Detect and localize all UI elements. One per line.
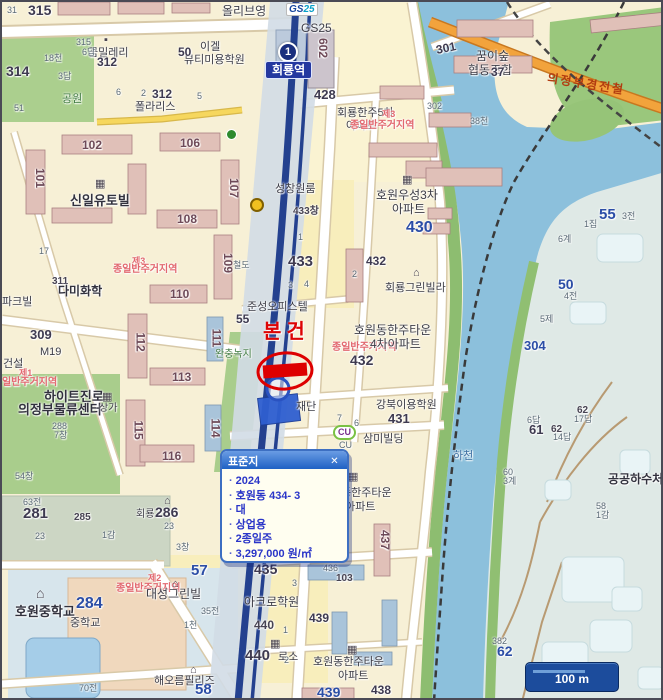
- map-label: 35전: [201, 607, 219, 616]
- map-label: 57: [191, 563, 208, 578]
- map-label: 62: [497, 644, 513, 658]
- map-label: 428: [314, 88, 336, 101]
- building-icon: ▦: [270, 639, 280, 650]
- map-label: 파크빌: [2, 297, 32, 308]
- map-label: 110: [170, 288, 189, 300]
- map-label: 438: [371, 684, 391, 696]
- map-label: 호원중학교: [15, 605, 75, 618]
- map-label: 7: [337, 414, 342, 423]
- map-label: 312: [152, 88, 172, 100]
- map-label: 이겔: [200, 42, 220, 53]
- house-icon: ⌂: [164, 496, 171, 507]
- map-label: 3계: [503, 477, 516, 486]
- map-label: 다미화학: [58, 285, 102, 297]
- map-label: 439: [309, 612, 329, 624]
- apartment-icon: ▦: [95, 179, 105, 190]
- map-label: 아파트: [392, 203, 425, 215]
- cu-store-logo: CU: [333, 425, 356, 440]
- shop-icon: ▪: [104, 35, 108, 46]
- map-label: 436: [323, 564, 338, 573]
- map-label: 114: [210, 418, 222, 437]
- school-icon: ⌂: [36, 586, 44, 600]
- map-label: 108: [177, 213, 197, 225]
- apartment-icon: ▦: [348, 472, 358, 483]
- map-label: 6계: [558, 235, 571, 244]
- map-label: 성창원룸: [275, 184, 315, 195]
- map-label: 1감: [102, 531, 115, 540]
- bullet: ·: [229, 533, 233, 545]
- bullet: ·: [229, 475, 233, 487]
- map-label: 2: [141, 89, 146, 98]
- apartment-icon: ▦: [347, 645, 357, 656]
- gs25-logo-text: GS: [289, 4, 303, 15]
- map-label: 17: [39, 247, 49, 256]
- map-label: 공공하수처리: [608, 473, 663, 485]
- map-label: 6답: [82, 48, 95, 57]
- house-icon: ⌂: [413, 268, 420, 279]
- map-label: 431: [388, 412, 410, 425]
- map-label: 의정부경전철: [547, 72, 626, 96]
- map-label: 51: [14, 104, 24, 113]
- map-label: 2: [352, 270, 357, 279]
- map-label: 종일반주거지역: [350, 121, 414, 131]
- map-label: 433: [288, 254, 313, 269]
- map-label: 1천: [184, 621, 197, 630]
- map-label: 314: [6, 64, 29, 78]
- map-label: 602: [317, 38, 329, 58]
- map-label: 6: [354, 419, 359, 428]
- map-label: 58: [195, 682, 212, 697]
- map-label: 309: [30, 328, 52, 341]
- map-label: 3답: [58, 72, 71, 81]
- map-label: 286: [155, 505, 178, 519]
- map-label: 철도: [233, 261, 250, 270]
- map-label: 31: [7, 6, 17, 15]
- map-label: 준성오피스텔: [247, 302, 308, 313]
- map-label: 삼미빌딩: [363, 434, 403, 445]
- map-label: 50: [178, 46, 191, 58]
- map-label: 439: [317, 685, 340, 699]
- map-label: 55: [236, 313, 249, 325]
- popup-info-row: ·3,297,000 원/㎡: [229, 547, 343, 562]
- map-label: 3전: [622, 212, 635, 221]
- map-label: 1집: [584, 220, 597, 229]
- map-label: 재단: [296, 402, 316, 413]
- map-label: 일반주거지역: [2, 378, 57, 388]
- popup-title: 표준지: [228, 453, 258, 469]
- map-label: 432: [350, 353, 373, 367]
- map-label: 3창: [176, 543, 189, 552]
- map-label: 3: [292, 579, 297, 588]
- map-label: 강북이용학원: [376, 400, 437, 411]
- scale-label: 100 m: [526, 672, 618, 686]
- popup-title-bar[interactable]: 표준지 ✕: [222, 451, 347, 469]
- map-label: 285: [74, 513, 91, 523]
- house-icon: ⌂: [190, 665, 197, 676]
- map-label: 17답: [574, 415, 592, 424]
- station-label-hoeryong: 회룡역: [265, 61, 312, 79]
- map-label: 304: [524, 339, 546, 352]
- map-label: 종일반주거지역: [113, 265, 177, 275]
- map-label: 제3: [382, 110, 395, 119]
- map-label: 54창: [15, 472, 33, 481]
- map-label: 6: [116, 88, 121, 97]
- cu-logo-text: CU: [338, 427, 351, 437]
- map-label: 70전: [79, 684, 97, 693]
- map-label: 4전: [564, 292, 577, 301]
- map-label: 101: [34, 168, 46, 188]
- popup-info-row: ·2종일주: [229, 532, 343, 547]
- map-label: 109: [222, 253, 234, 273]
- map-label: 315: [76, 38, 91, 47]
- map-label: 103: [336, 574, 353, 584]
- map-label: 115: [133, 420, 145, 439]
- building-icon: ▦: [102, 392, 112, 403]
- standard-land-popup: 표준지 ✕ ·2024·호원동 434- 3·대·상업용·2종일주·3,297,…: [220, 449, 349, 563]
- map-label: 111: [210, 329, 222, 348]
- map-label: 완충녹지: [215, 350, 252, 360]
- map-label: 회룡그린빌라: [385, 283, 446, 294]
- map-label: 꿈이숲: [476, 50, 509, 62]
- map-label: 14답: [553, 433, 571, 442]
- map-label: 18천: [44, 54, 62, 63]
- map-label: 37: [491, 66, 504, 78]
- map-label: 제2: [148, 574, 161, 583]
- map-label: 437: [379, 530, 391, 550]
- map-label: 상가: [99, 404, 117, 414]
- map-label: 312: [97, 56, 117, 68]
- map-label: 1감: [596, 511, 609, 520]
- map-label: 430: [406, 220, 433, 236]
- gs25-logo-text2: 25: [303, 4, 314, 15]
- map-label: 아크로학원: [244, 596, 299, 608]
- map-label: 호원동한주타운: [354, 324, 431, 336]
- map-label: 2: [284, 656, 289, 665]
- map-label: 106: [180, 137, 200, 149]
- map-label: 1: [298, 233, 303, 242]
- map-label: 23: [164, 522, 174, 531]
- map-label: 432: [366, 255, 386, 267]
- map-label: 55: [599, 207, 616, 222]
- map-label: 호원동한주타운: [313, 657, 384, 668]
- map-label: 3: [288, 281, 293, 290]
- map-label: M19: [40, 347, 61, 358]
- map-label: 4차아파트: [370, 338, 421, 350]
- map-label: 의정부물류센터: [18, 403, 102, 416]
- map-label: 하천: [453, 451, 473, 462]
- map-labels-layer: 31531올리브영GS25이겔뷰티미용학원50꿈밀레리3156답18천3143답…: [2, 2, 661, 698]
- tree-marker-icon: [226, 129, 237, 140]
- map-label: 5제: [540, 315, 553, 324]
- map-label: 폴라리스: [135, 102, 175, 113]
- map-label: 50: [558, 277, 574, 291]
- map-label: 5: [197, 92, 202, 101]
- map-label: 올리브영: [222, 5, 266, 17]
- popup-close-icon[interactable]: ✕: [328, 455, 341, 468]
- house-icon: ⌂: [172, 579, 179, 590]
- map-label: 중학교: [70, 618, 100, 629]
- map-label: 433창: [293, 207, 319, 217]
- map-label: 107: [228, 178, 240, 198]
- map-label: 7창: [54, 431, 67, 440]
- traffic-signal-icon: [250, 198, 264, 212]
- map-scale-bar: 100 m: [525, 662, 619, 692]
- map-label: 호원우성3차: [376, 189, 438, 201]
- map-label: 61: [529, 423, 543, 436]
- map-label: 1: [283, 626, 288, 635]
- popup-info-row: ·대: [229, 503, 343, 518]
- popup-body: ·2024·호원동 434- 3·대·상업용·2종일주·3,297,000 원/…: [222, 469, 347, 561]
- map-label: 뷰티미용학원: [184, 55, 245, 66]
- map-label: 38천: [470, 117, 488, 126]
- map-label: 본건: [263, 322, 310, 342]
- map-label: 112: [135, 332, 147, 351]
- map-label: 440: [254, 619, 274, 631]
- popup-info-row: ·상업용: [229, 518, 343, 533]
- map-label: GS25: [301, 22, 332, 34]
- bullet: ·: [229, 504, 233, 516]
- apartment-icon: ▦: [402, 175, 412, 186]
- bullet: ·: [229, 548, 233, 560]
- bullet: ·: [229, 519, 233, 531]
- map-label: 116: [162, 450, 181, 462]
- gs25-store-logo: GS25: [286, 3, 318, 16]
- popup-info-row: ·호원동 434- 3: [229, 489, 343, 504]
- map-label: 301: [435, 40, 457, 56]
- map-label: 공원: [62, 94, 82, 105]
- map-canvas[interactable]: 31531올리브영GS25이겔뷰티미용학원50꿈밀레리3156답18천3143답…: [0, 0, 663, 700]
- map-label: 440: [245, 648, 270, 663]
- map-label: 284: [76, 596, 103, 612]
- map-label: 23: [35, 532, 45, 541]
- popup-info-row: ·2024: [229, 474, 343, 489]
- map-label: 315: [28, 3, 51, 17]
- map-label: 4: [304, 280, 309, 289]
- map-label: 281: [23, 506, 48, 521]
- subway-line1-badge: 1: [278, 42, 298, 62]
- map-label: 435: [254, 562, 277, 576]
- map-label: 신일유토빌: [70, 194, 130, 207]
- map-label: 아파트: [338, 671, 368, 682]
- map-label: 302: [427, 102, 442, 111]
- map-label: 113: [172, 371, 191, 383]
- bullet: ·: [229, 490, 233, 502]
- map-label: 102: [82, 139, 102, 151]
- map-label: 회룡: [136, 510, 154, 520]
